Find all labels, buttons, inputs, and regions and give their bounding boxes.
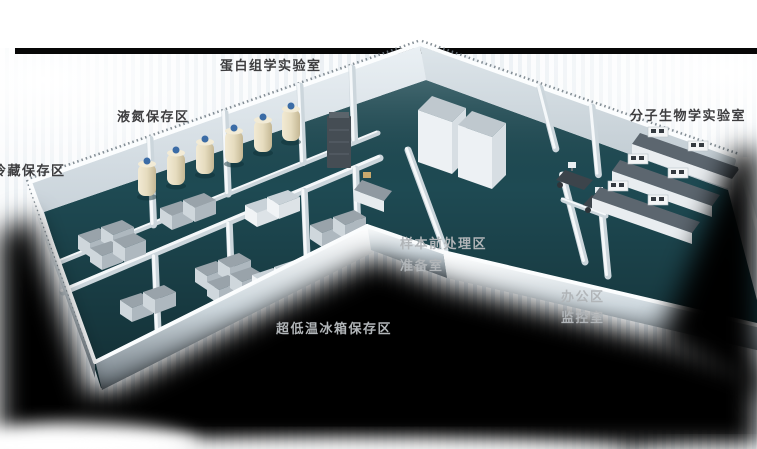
- lab-floorplan-scene: 蛋白组学实验室 液氮保存区 冷藏保存区 分子生物学实验室 样本前处理区 准备室 …: [0, 0, 757, 449]
- render-top-edge: [15, 48, 757, 54]
- floorplan-3d-render: [0, 0, 757, 449]
- tall-dark-cabinet: [327, 112, 351, 168]
